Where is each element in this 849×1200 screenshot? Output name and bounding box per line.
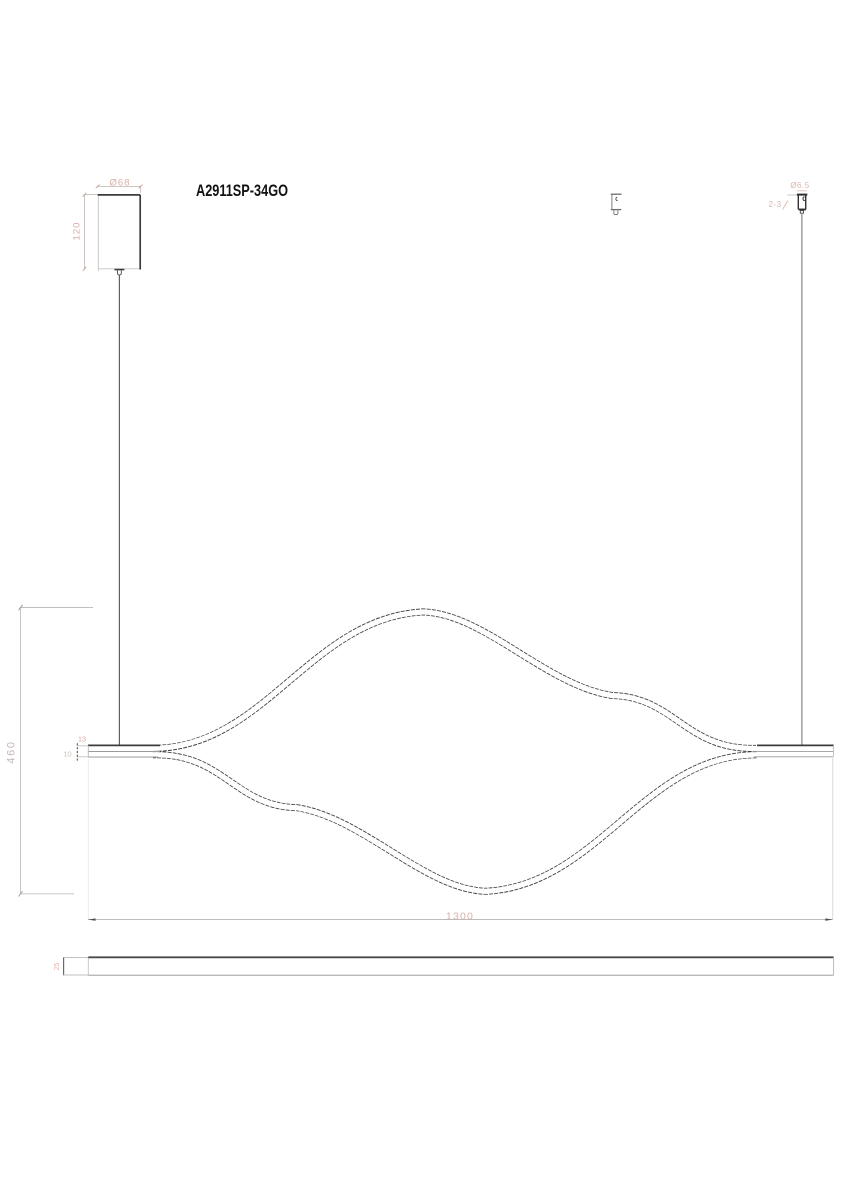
svg-text:460: 460 [6, 740, 18, 763]
svg-text:10: 10 [63, 750, 71, 759]
svg-text:1300: 1300 [446, 911, 474, 923]
svg-text:Ø6.5: Ø6.5 [790, 181, 809, 190]
svg-text:A2911SP-34GO: A2911SP-34GO [196, 182, 288, 200]
svg-text:Ø68: Ø68 [110, 178, 131, 189]
svg-text:13: 13 [78, 735, 86, 744]
svg-text:120: 120 [72, 222, 83, 241]
svg-text:2-3: 2-3 [768, 200, 781, 209]
svg-text:25: 25 [54, 963, 61, 971]
